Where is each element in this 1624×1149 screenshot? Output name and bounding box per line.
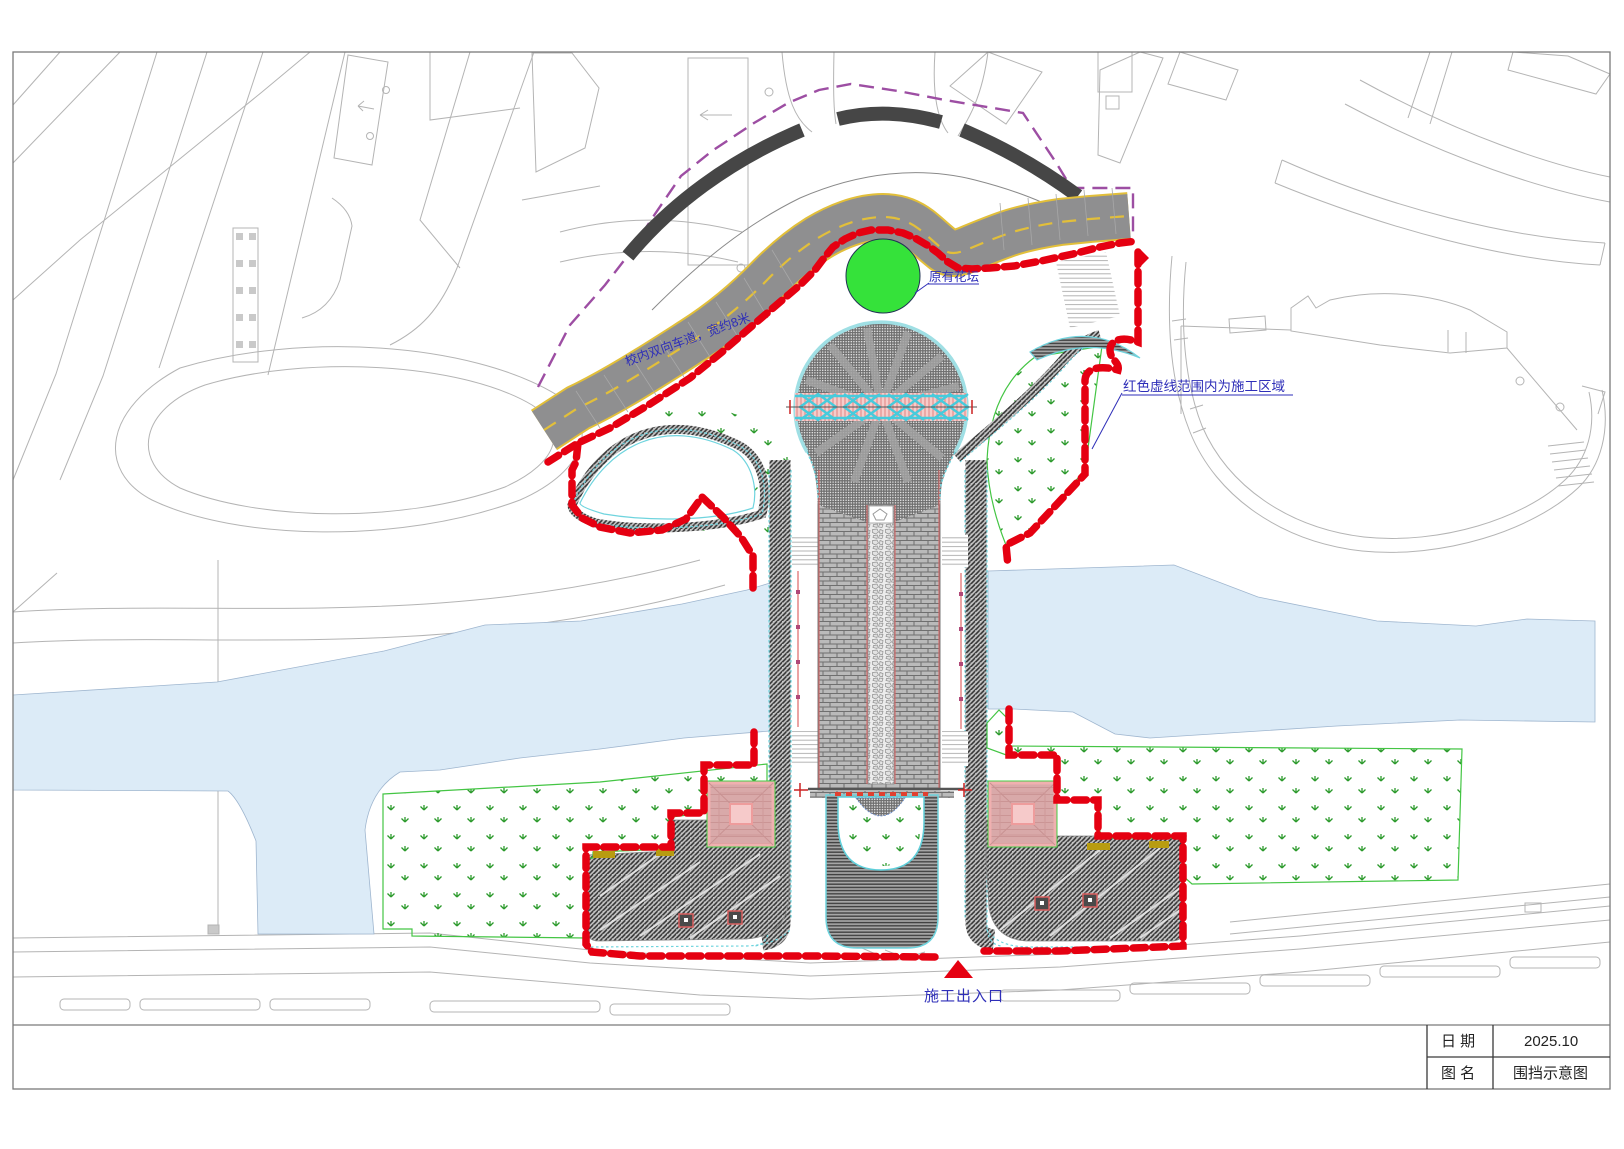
- svg-text:红色虚线范围内为施工区域: 红色虚线范围内为施工区域: [1123, 378, 1285, 394]
- svg-text:图 名: 图 名: [1441, 1065, 1475, 1082]
- svg-text:日 期: 日 期: [1441, 1033, 1475, 1050]
- svg-text:2025.10: 2025.10: [1524, 1033, 1578, 1050]
- svg-text:原有花坛: 原有花坛: [929, 269, 979, 284]
- svg-text:围挡示意图: 围挡示意图: [1513, 1064, 1588, 1082]
- svg-text:施工出入口: 施工出入口: [924, 988, 1004, 1005]
